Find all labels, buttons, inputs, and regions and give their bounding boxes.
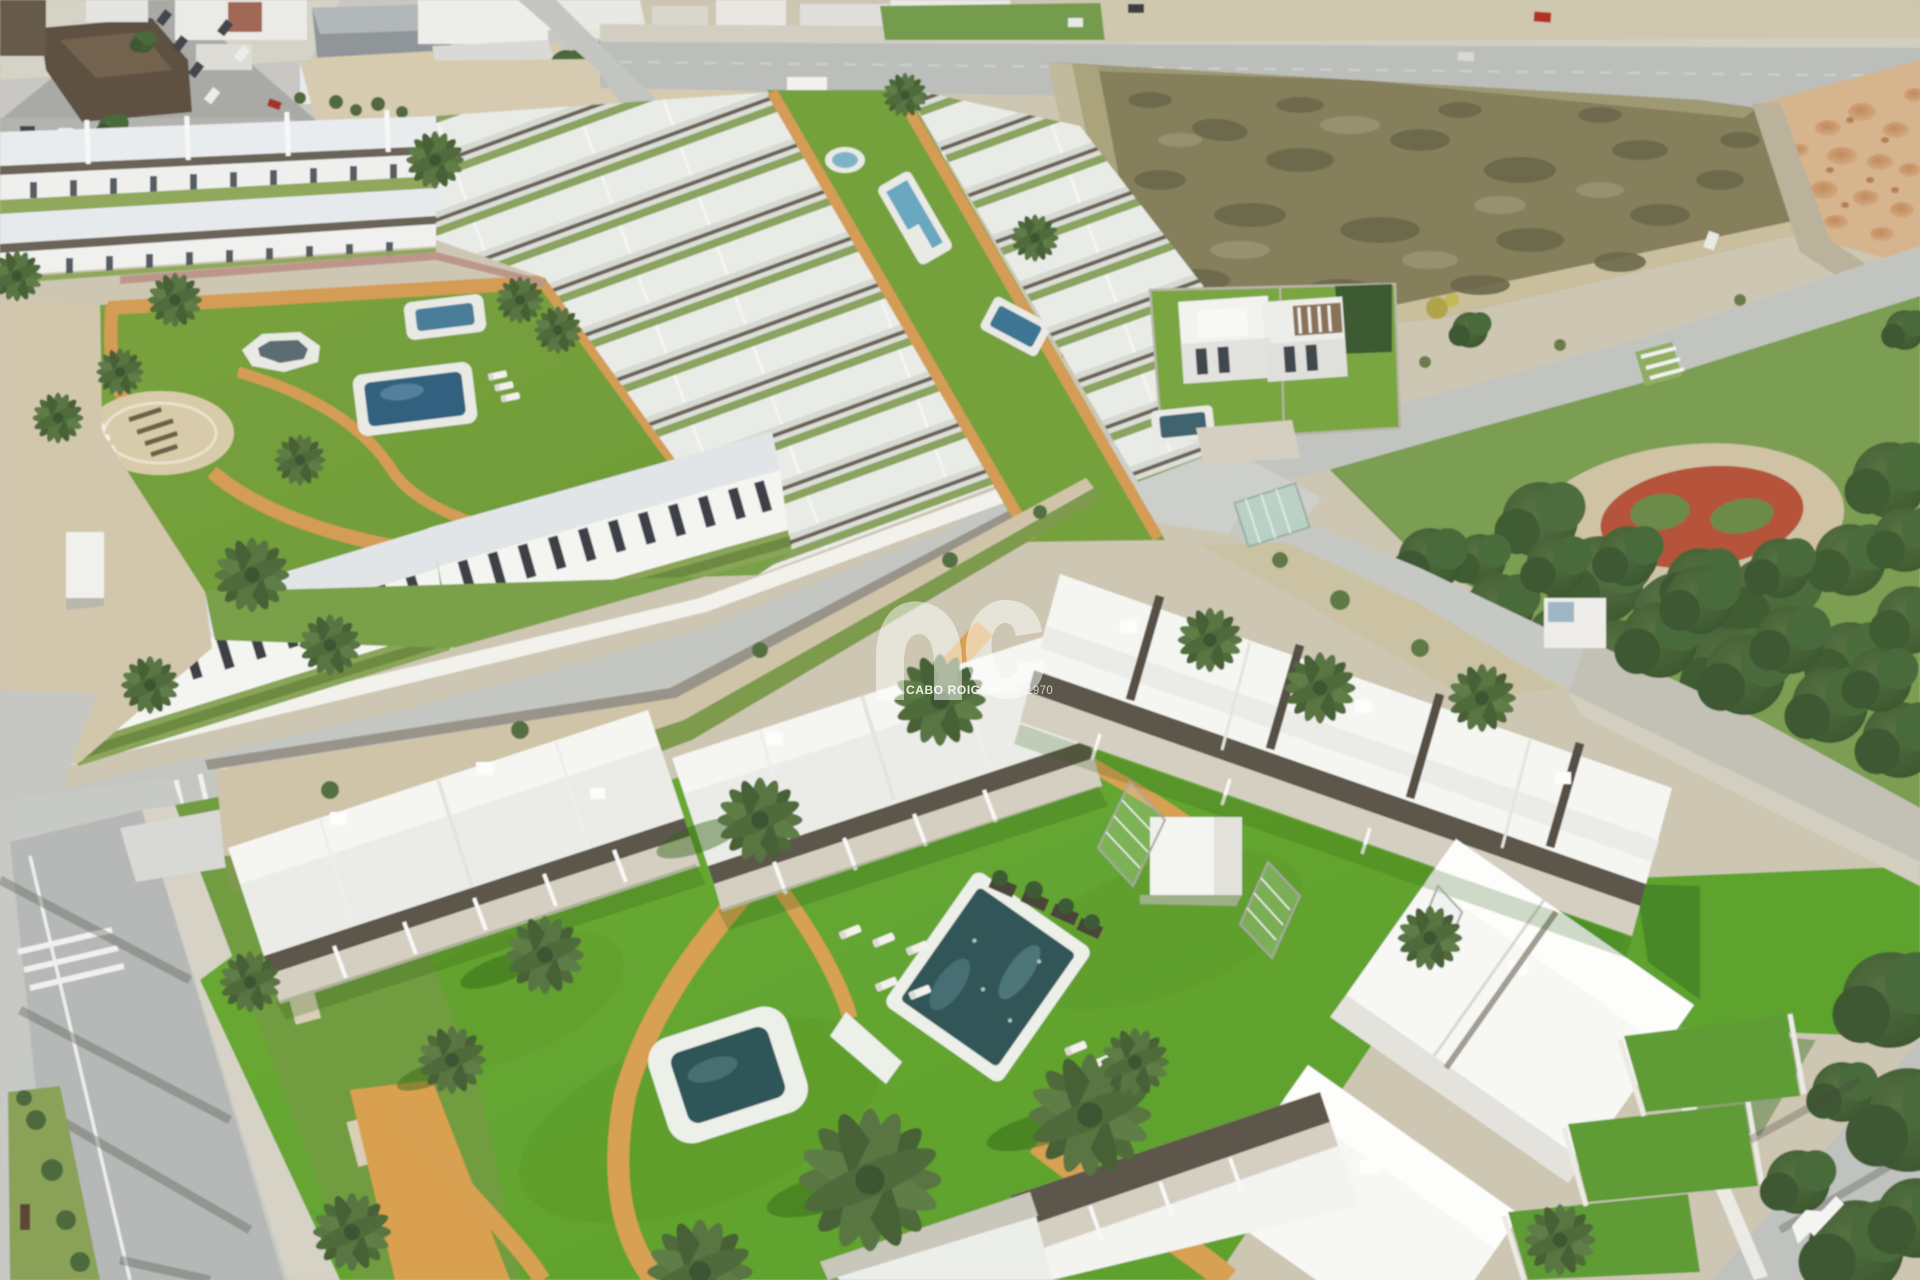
svg-text:Desde 1970: Desde 1970 [988, 685, 1053, 697]
svg-text:CABO ROIG: CABO ROIG [906, 683, 981, 697]
